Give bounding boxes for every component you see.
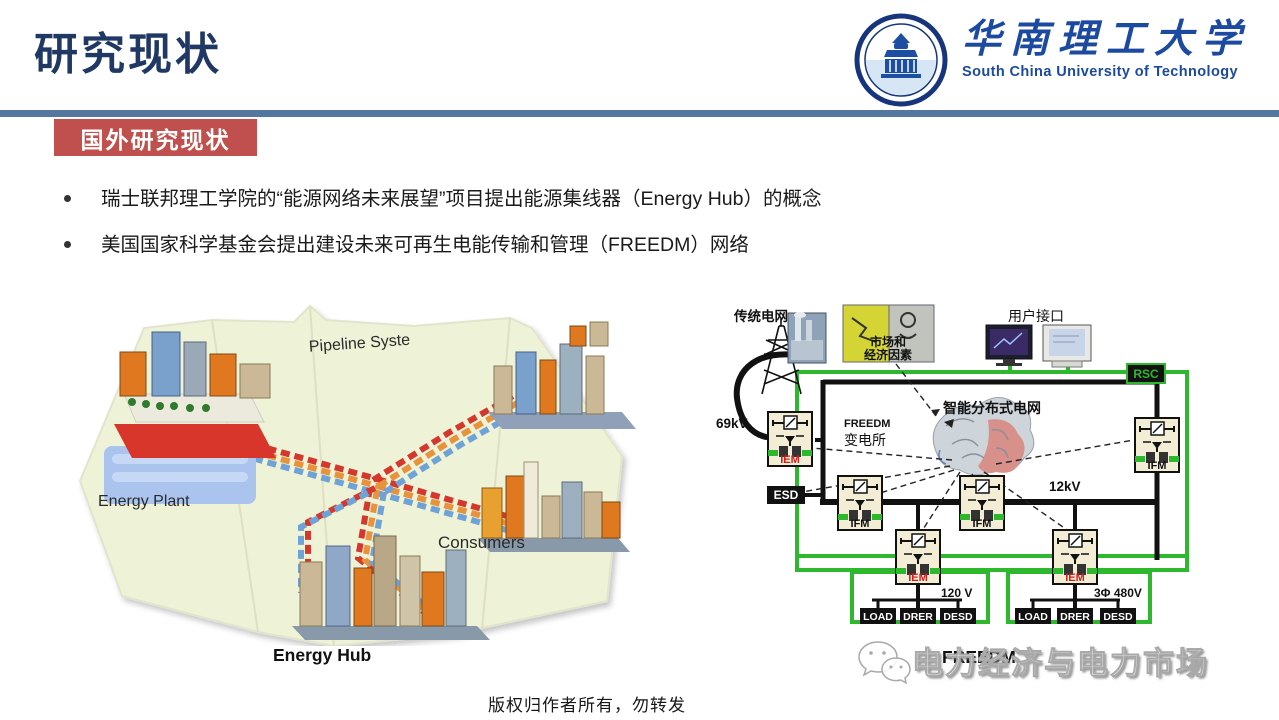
ifm-label: IFM [1148,460,1167,472]
load-label: LOAD [1018,611,1048,623]
voltage-69kv-label: 69kV [716,416,748,431]
drer-label: DRER [903,611,933,623]
crt-monitor-icon [986,325,1032,366]
market-label-line1: 市场和 [870,334,906,349]
header-divider [0,110,1279,117]
user-interface-label: 用户接口 [1008,308,1064,324]
voltage-12kv-label: 12kV [1049,479,1081,494]
power-plant-photo [788,312,826,363]
substation-label-line2: 变电所 [844,432,886,448]
bullet-dot-icon [64,241,71,248]
voltage-120v-label: 120 V [941,586,972,600]
bullet-item: 瑞士联邦理工学院的“能源网络未来展望”项目提出能源集线器（Energy Hub）… [58,186,1178,212]
bullet-dot-icon [64,195,71,202]
energy-hub-caption: Energy Hub [273,645,371,666]
energy-hub-figure: Pipeline Syste Energy Plant Consumers [62,296,642,646]
university-name-cn: 华南理工大学 [962,18,1274,61]
consumers-label: Consumers [438,533,525,552]
desd-label: DESD [943,611,973,623]
section-badge: 国外研究现状 [54,119,257,156]
bullet-text: 美国国家科学基金会提出建设未来可再生电能传输和管理（FREEDM）网络 [101,232,749,258]
energy-plant-label: Energy Plant [98,493,190,510]
substation-label-line1: FREEDM [844,418,890,430]
ifm-label: IFM [851,518,870,530]
bullet-list: 瑞士联邦理工学院的“能源网络未来展望”项目提出能源集线器（Energy Hub）… [58,186,1178,279]
scut-seal-logo [854,13,948,107]
market-label-line2: 经济因素 [864,347,912,362]
iem-label: IEM [908,572,928,584]
rsc-label: RSC [1133,367,1159,381]
ifm-label: IFM [973,518,992,530]
university-name-en: South China University of Technology [962,64,1274,80]
copyright-note: 版权归作者所有，勿转发 [488,691,686,716]
desktop-pc-icon [1043,325,1091,367]
load-label: LOAD [863,611,893,623]
traditional-grid-label: 传统电网 [733,308,788,324]
watermark-text: 电力经济与电力市场 [912,638,1209,683]
freedm-figure: 市场和 经济因素 RSC ESD IEM [700,298,1270,646]
desd-label: DESD [1103,611,1133,623]
drer-label: DRER [1060,611,1090,623]
smart-grid-label: 智能分布式电网 [942,400,1041,416]
page-title: 研究现状 [34,18,222,82]
wechat-icon [856,636,912,684]
bullet-text: 瑞士联邦理工学院的“能源网络未来展望”项目提出能源集线器（Energy Hub）… [101,186,821,212]
esd-label: ESD [774,488,799,502]
bullet-item: 美国国家科学基金会提出建设未来可再生电能传输和管理（FREEDM）网络 [58,232,1178,258]
iem-label: IEM [1065,572,1085,584]
iem-label: IEM [780,454,800,466]
link-arrowhead [931,409,940,416]
voltage-480v-label: 3Φ 480V [1094,586,1142,600]
university-wordmark: 华南理工大学 South China University of Technol… [962,18,1274,80]
watermark: 电力经济与电力市场 [856,636,1209,684]
